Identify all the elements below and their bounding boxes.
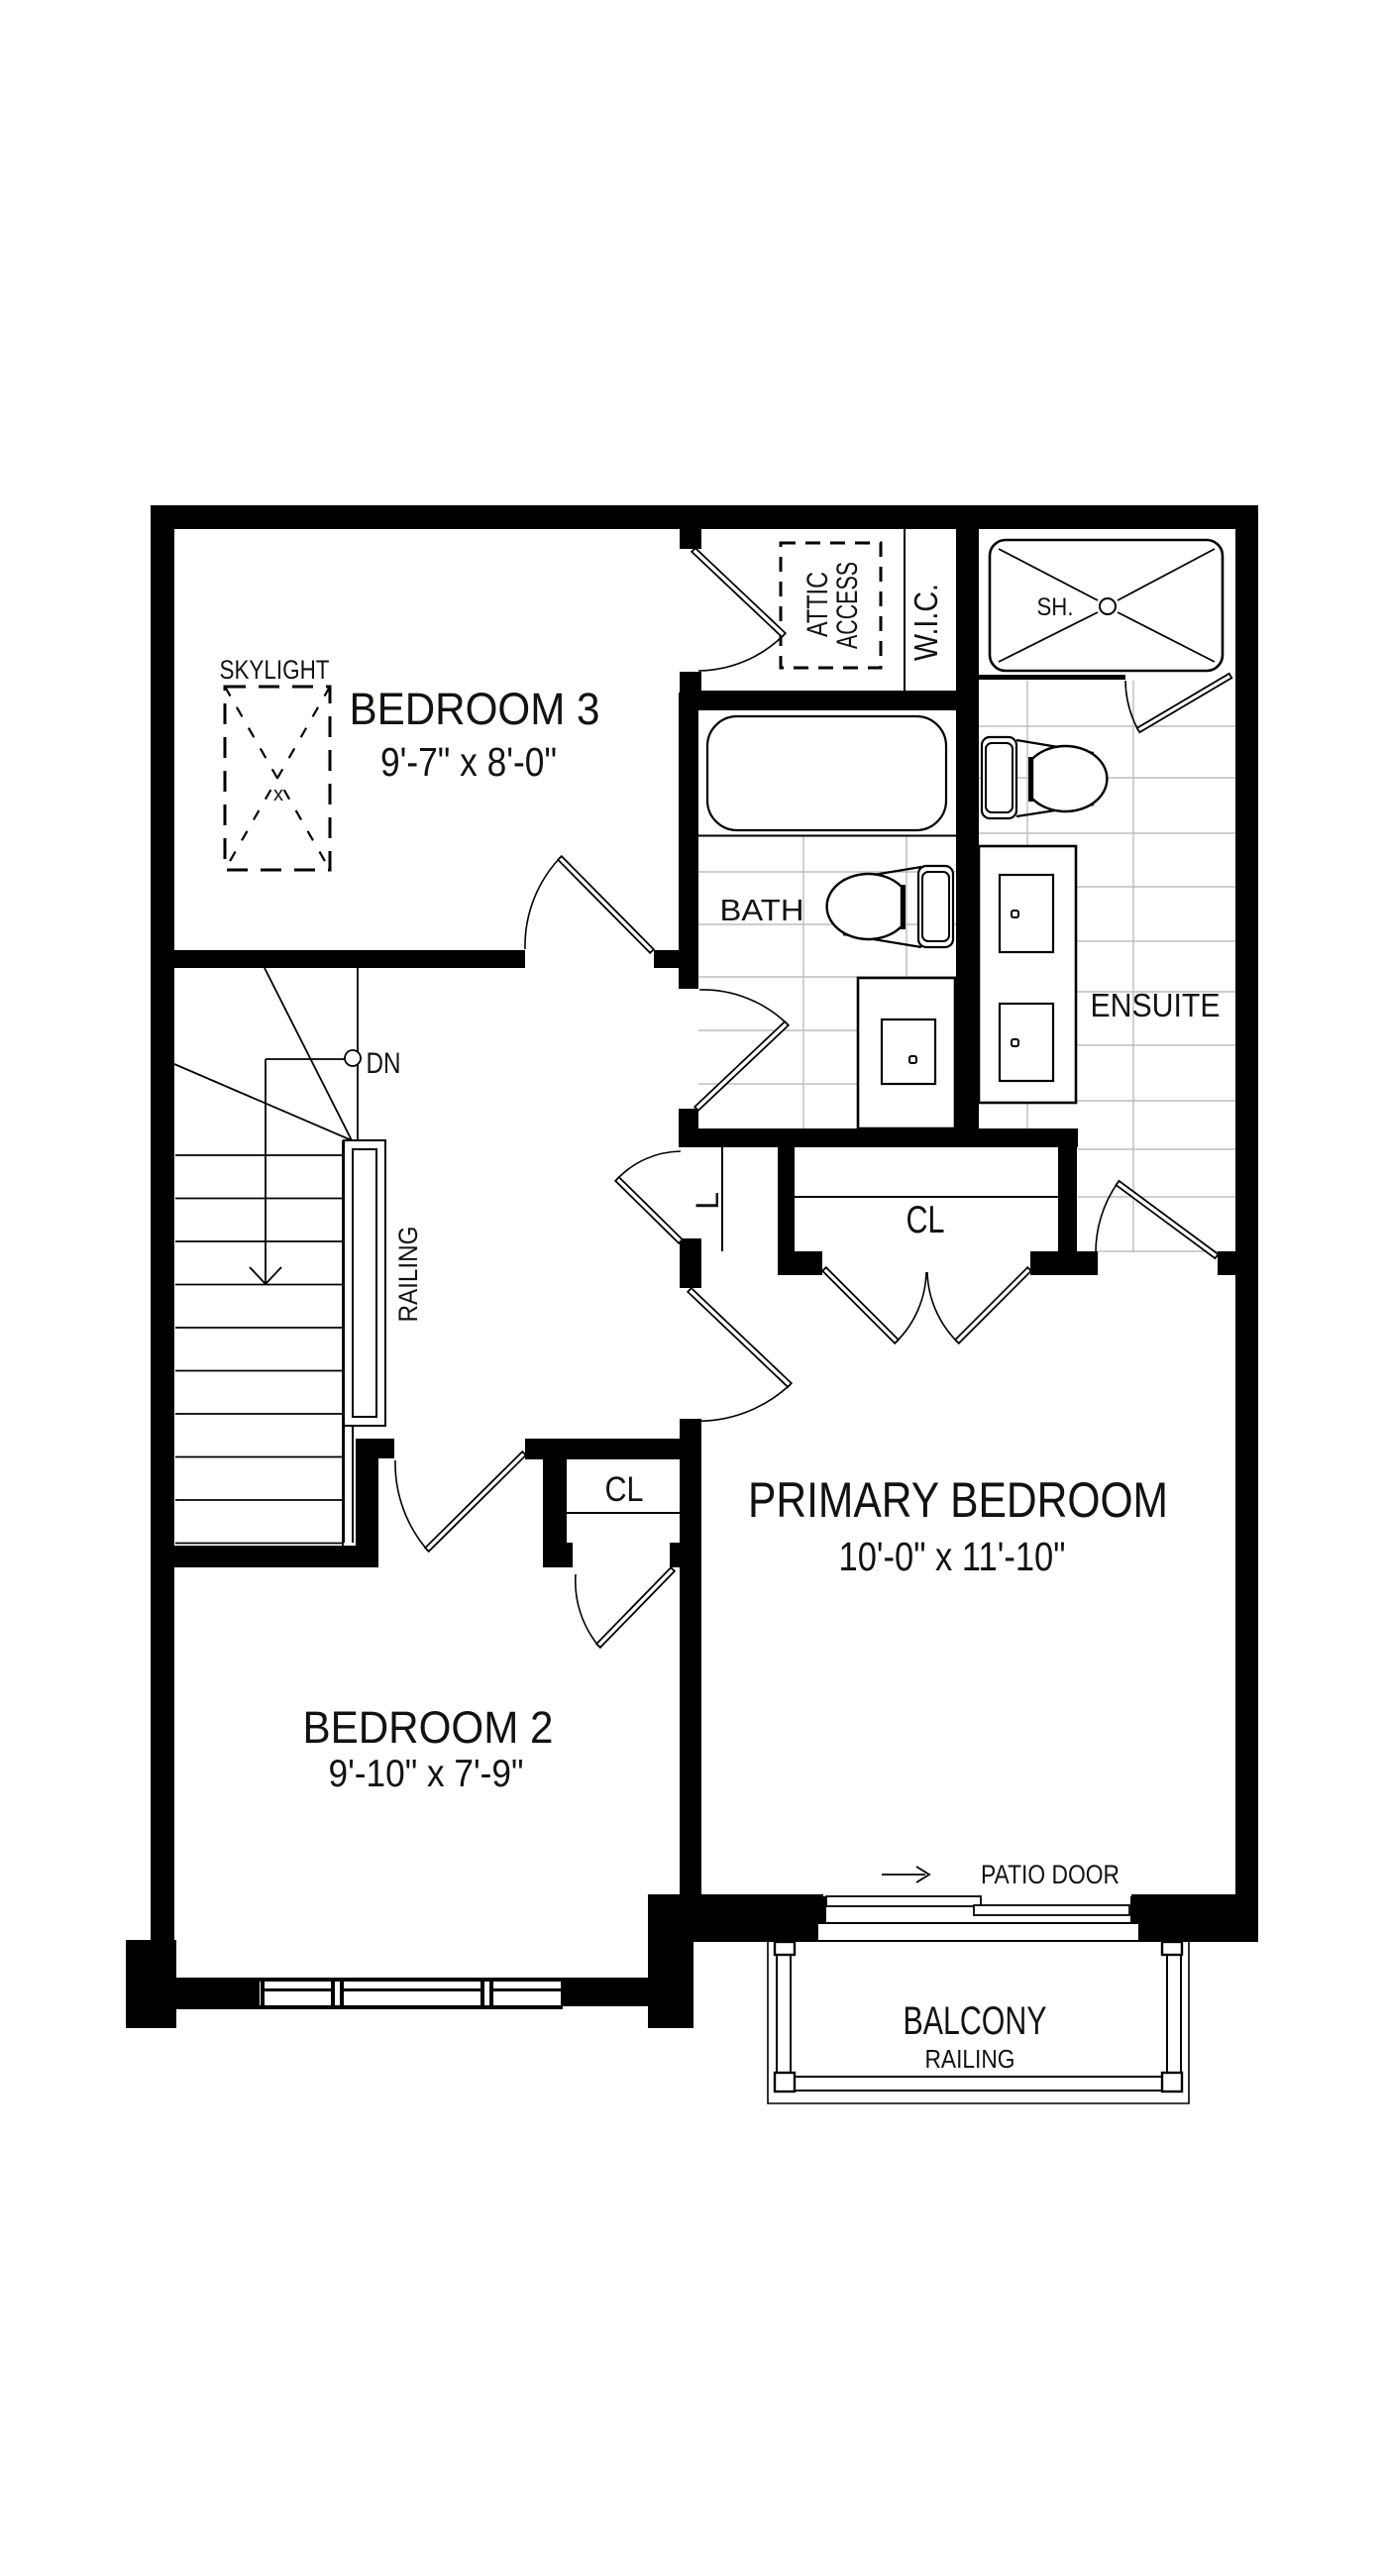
svg-text:9'-7" x 8'-0": 9'-7" x 8'-0" <box>380 739 557 785</box>
svg-text:DN: DN <box>367 1047 401 1080</box>
svg-text:PRIMARY BEDROOM: PRIMARY BEDROOM <box>748 1472 1168 1528</box>
svg-text:x: x <box>273 784 283 805</box>
svg-text:BEDROOM 3: BEDROOM 3 <box>350 684 600 734</box>
svg-text:CL: CL <box>605 1470 644 1509</box>
svg-text:RAILING: RAILING <box>393 1227 423 1323</box>
svg-text:PATIO DOOR: PATIO DOOR <box>981 1860 1120 1889</box>
svg-text:ACCESS: ACCESS <box>831 562 864 649</box>
svg-text:L: L <box>690 1192 725 1210</box>
svg-text:SKYLIGHT: SKYLIGHT <box>220 655 330 685</box>
svg-text:9'-10" x 7'-9": 9'-10" x 7'-9" <box>329 1753 524 1795</box>
svg-text:BALCONY: BALCONY <box>904 1999 1047 2043</box>
svg-text:CL: CL <box>907 1199 945 1241</box>
svg-text:BATH: BATH <box>720 893 804 927</box>
svg-text:ENSUITE: ENSUITE <box>1091 987 1221 1023</box>
svg-text:BEDROOM 2: BEDROOM 2 <box>303 1702 554 1753</box>
svg-text:RAILING: RAILING <box>925 2044 1015 2074</box>
svg-text:10'-0" x 11'-10": 10'-0" x 11'-10" <box>839 1534 1066 1579</box>
svg-text:W.I.C.: W.I.C. <box>907 584 944 661</box>
svg-text:SH.: SH. <box>1037 593 1074 621</box>
svg-text:ATTIC: ATTIC <box>801 572 834 637</box>
